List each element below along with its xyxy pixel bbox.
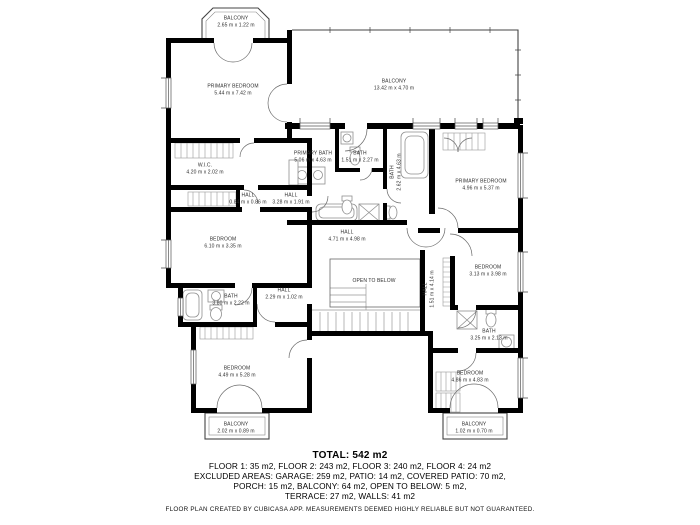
stairs — [312, 284, 420, 331]
room-label-bedroom-bottom-right: BEDROOM4.86 m x 4.83 m — [451, 371, 488, 384]
room-label-bath-vertical: BATH2.62 m x 4.63 m — [390, 153, 403, 190]
room-label-bedroom-right: BEDROOM3.13 m x 3.98 m — [469, 265, 506, 278]
room-label-primary-bath: PRIMARY BATH5.06 m x 4.63 m — [294, 151, 332, 164]
balcony-large-outline — [292, 27, 521, 123]
room-label-bath-left: BATH3.80 m x 2.22 m — [212, 294, 249, 307]
floors-line: FLOOR 1: 35 m2, FLOOR 2: 243 m2, FLOOR 3… — [0, 461, 700, 471]
room-label-balcony-bottom-right: BALCONY1.02 m x 0.70 m — [455, 422, 492, 435]
room-label-primary-bedroom-left: PRIMARY BEDROOM5.44 m x 7.42 m — [207, 84, 258, 97]
room-label-bedroom-left: BEDROOM6.10 m x 3.35 m — [204, 237, 241, 250]
floorplan-drawing — [0, 0, 700, 525]
room-label-balcony-large: BALCONY13.42 m x 4.70 m — [374, 79, 414, 92]
room-label-hall-small: HALL0.84 m x 0.86 m — [229, 193, 266, 206]
room-label-hall-vertical: HALL1.51 m x 4.14 m — [423, 270, 436, 307]
floorplan: BALCONY2.65 m x 1.22 m PRIMARY BEDROOM5.… — [0, 0, 700, 525]
room-label-balcony-top: BALCONY2.65 m x 1.22 m — [217, 16, 254, 29]
room-label-balcony-bottom-left: BALCONY2.02 m x 0.89 m — [217, 422, 254, 435]
room-label-wic: W.I.C.4.20 m x 2.02 m — [186, 163, 223, 176]
disclaimer: FLOOR PLAN CREATED BY CUBICASA APP. MEAS… — [0, 506, 700, 513]
room-label-bedroom-bottom-left: BEDROOM4.49 m x 5.28 m — [218, 366, 255, 379]
room-label-hall-lower-left: HALL2.29 m x 1.02 m — [265, 288, 302, 301]
excluded-line-1: EXCLUDED AREAS: GARAGE: 259 m2, PATIO: 1… — [0, 471, 700, 481]
room-label-primary-bedroom-right: PRIMARY BEDROOM4.96 m x 5.37 m — [455, 179, 506, 192]
room-label-hall-upper-left: HALL3.28 m x 1.91 m — [272, 193, 309, 206]
room-label-bath-small: BATH1.51 m x 2.27 m — [341, 151, 378, 164]
door-arcs — [214, 43, 498, 408]
room-label-hall-center: HALL4.71 m x 4.98 m — [328, 230, 365, 243]
area-summary: TOTAL: 542 m2 FLOOR 1: 35 m2, FLOOR 2: 2… — [0, 450, 700, 513]
room-label-bath-right: BATH3.25 m x 2.13 m — [470, 329, 507, 342]
excluded-line-3: TERRACE: 27 m2, WALLS: 41 m2 — [0, 491, 700, 501]
excluded-line-2: PORCH: 15 m2, BALCONY: 64 m2, OPEN TO BE… — [0, 481, 700, 491]
room-label-open-to-below: OPEN TO BELOW — [352, 278, 395, 285]
total-area: TOTAL: 542 m2 — [0, 450, 700, 461]
